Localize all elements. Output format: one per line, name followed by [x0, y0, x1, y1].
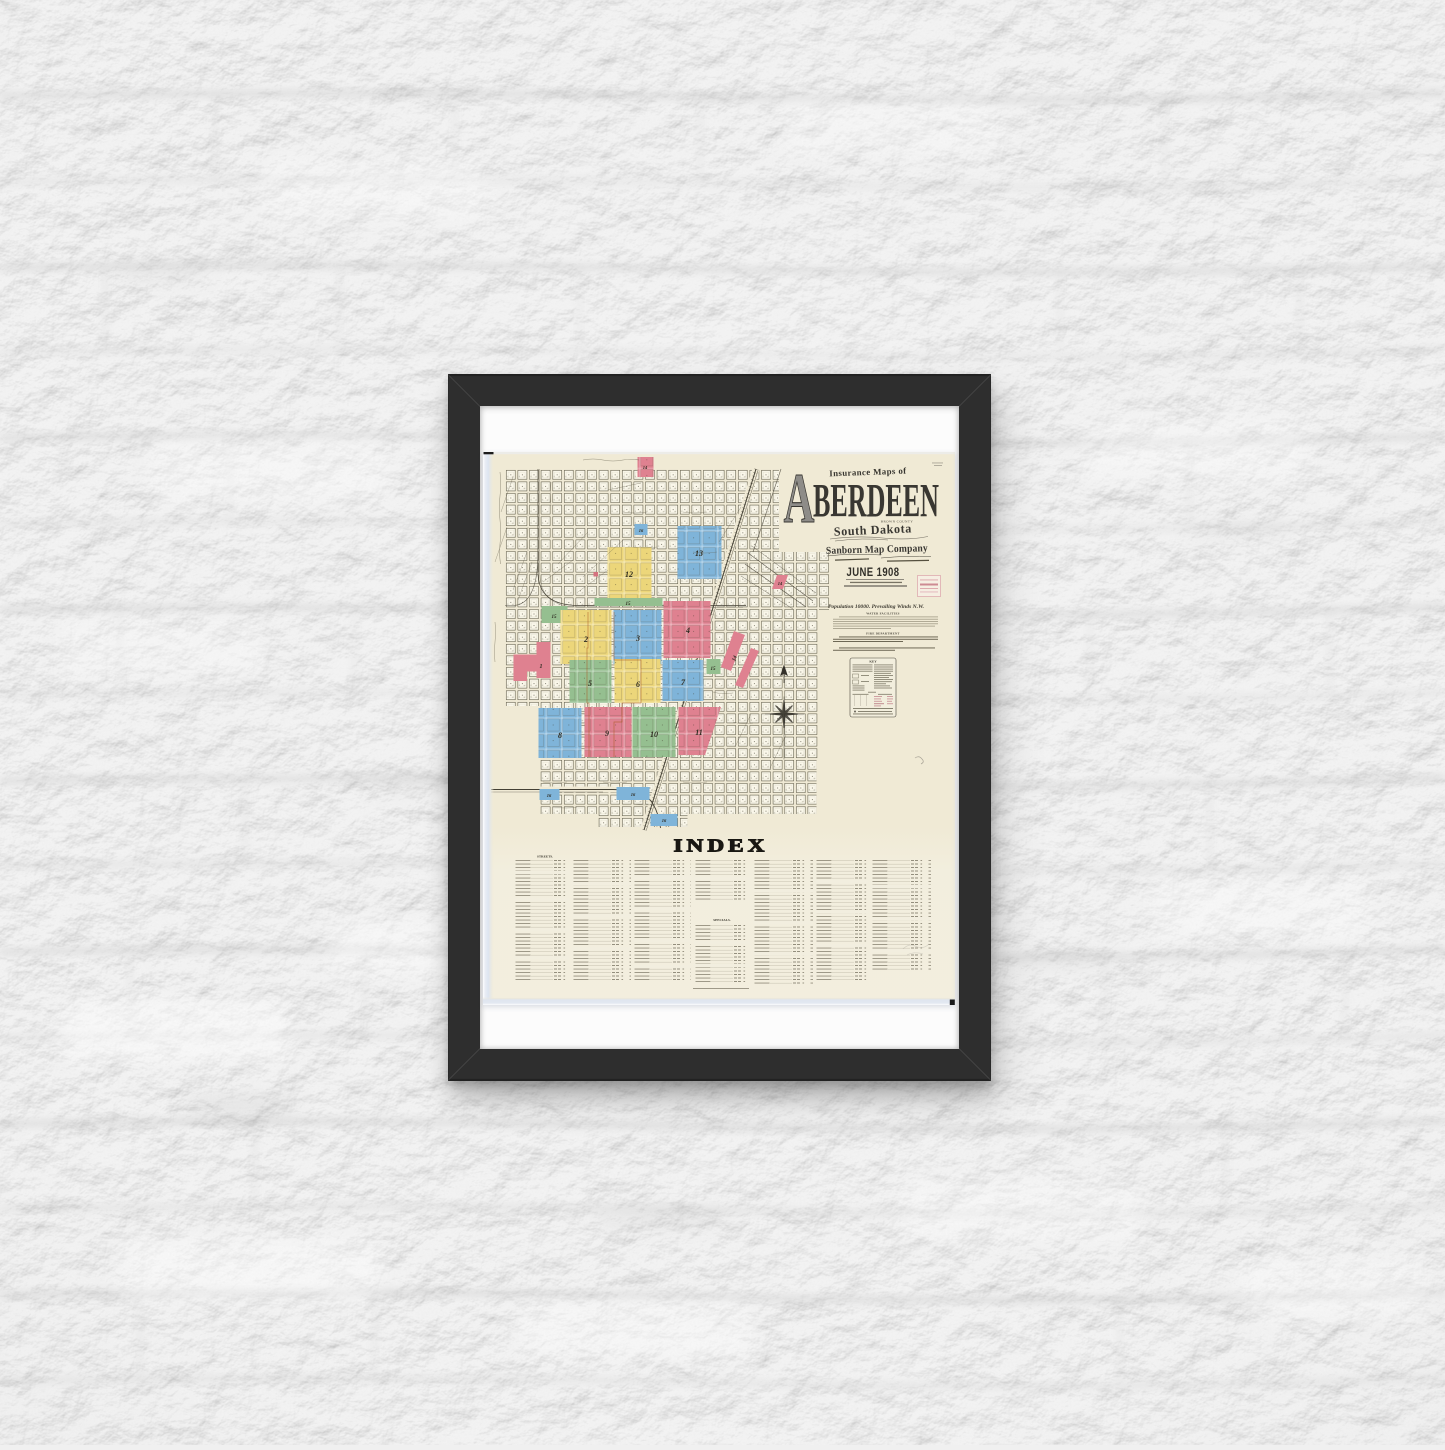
svg-text:13: 13	[695, 549, 703, 558]
svg-text:2: 2	[583, 635, 588, 644]
svg-text:Population 10000. Prevailing: Population 10000. Prevailing Winds N.W.	[828, 604, 924, 610]
svg-text:16: 16	[662, 818, 667, 823]
svg-text:16: 16	[639, 528, 644, 533]
svg-text:14: 14	[778, 581, 783, 586]
svg-text:FIRE DEPARTMENT: FIRE DEPARTMENT	[866, 632, 899, 636]
svg-text:KEY: KEY	[869, 660, 877, 664]
svg-text:6: 6	[636, 680, 640, 689]
svg-text:BERDEEN: BERDEEN	[813, 475, 939, 527]
svg-text:5: 5	[588, 679, 592, 688]
svg-text:9: 9	[605, 729, 609, 738]
svg-text:15: 15	[626, 602, 632, 607]
svg-text:14: 14	[643, 465, 648, 470]
svg-text:JUNE 1908: JUNE 1908	[847, 566, 900, 579]
svg-text:WATER FACILITIES: WATER FACILITIES	[866, 612, 899, 616]
svg-text:SPECIALS.: SPECIALS.	[713, 918, 731, 922]
svg-text:3: 3	[635, 634, 640, 643]
svg-text:STREETS.: STREETS.	[537, 855, 553, 859]
svg-text:12: 12	[625, 570, 633, 579]
svg-text:4: 4	[685, 626, 690, 635]
svg-text:16: 16	[547, 793, 552, 798]
svg-text:16: 16	[631, 792, 636, 797]
svg-text:A: A	[784, 459, 815, 538]
svg-text:11: 11	[695, 728, 703, 737]
svg-text:1: 1	[540, 664, 543, 670]
svg-text:8: 8	[558, 731, 562, 740]
svg-text:15: 15	[552, 615, 558, 620]
svg-text:10: 10	[650, 730, 658, 739]
svg-text:INDEX: INDEX	[674, 836, 769, 856]
svg-text:15: 15	[711, 667, 717, 672]
